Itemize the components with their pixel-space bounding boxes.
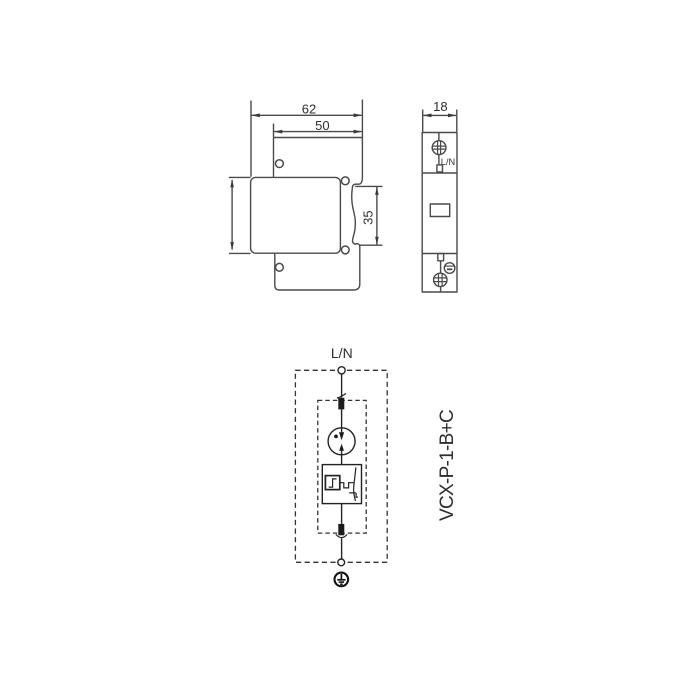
svg-text:62: 62 (302, 102, 316, 117)
svg-text:VCX-P-1-B+C: VCX-P-1-B+C (437, 410, 458, 521)
svg-text:L/N: L/N (441, 157, 455, 167)
svg-text:50: 50 (315, 118, 329, 133)
svg-text:18: 18 (433, 99, 447, 114)
svg-text:35: 35 (361, 210, 376, 224)
svg-text:L/N: L/N (331, 345, 353, 361)
